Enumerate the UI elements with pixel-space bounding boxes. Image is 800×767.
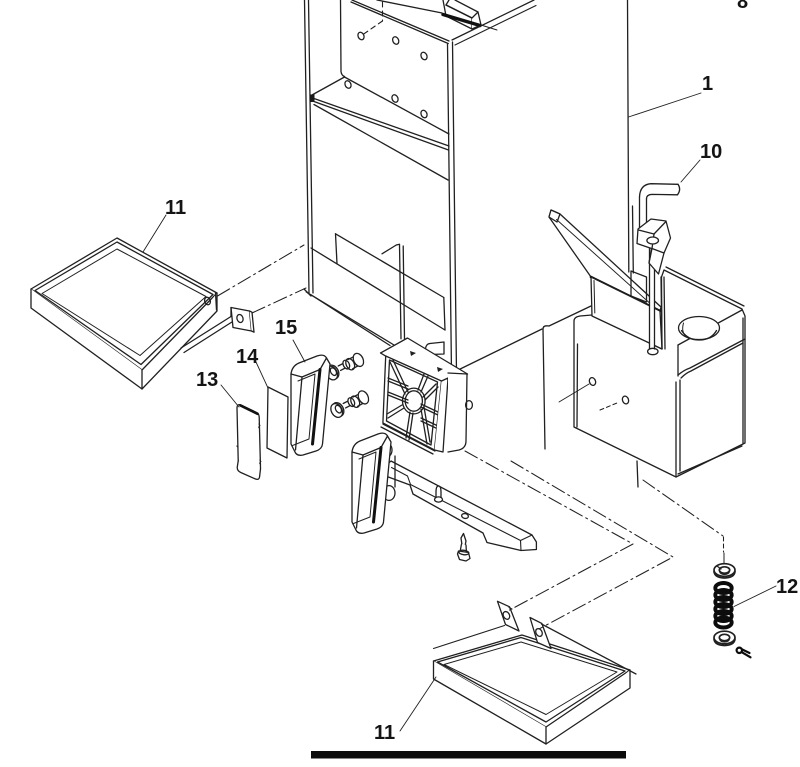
svg-text:11: 11 [165,197,186,219]
svg-text:14: 14 [236,346,259,368]
svg-text:8: 8 [737,0,748,13]
svg-text:1: 1 [702,73,713,95]
svg-text:13: 13 [196,369,218,391]
svg-text:12: 12 [776,576,798,598]
svg-text:10: 10 [700,141,722,163]
svg-text:11: 11 [374,722,395,744]
svg-text:15: 15 [275,317,297,339]
